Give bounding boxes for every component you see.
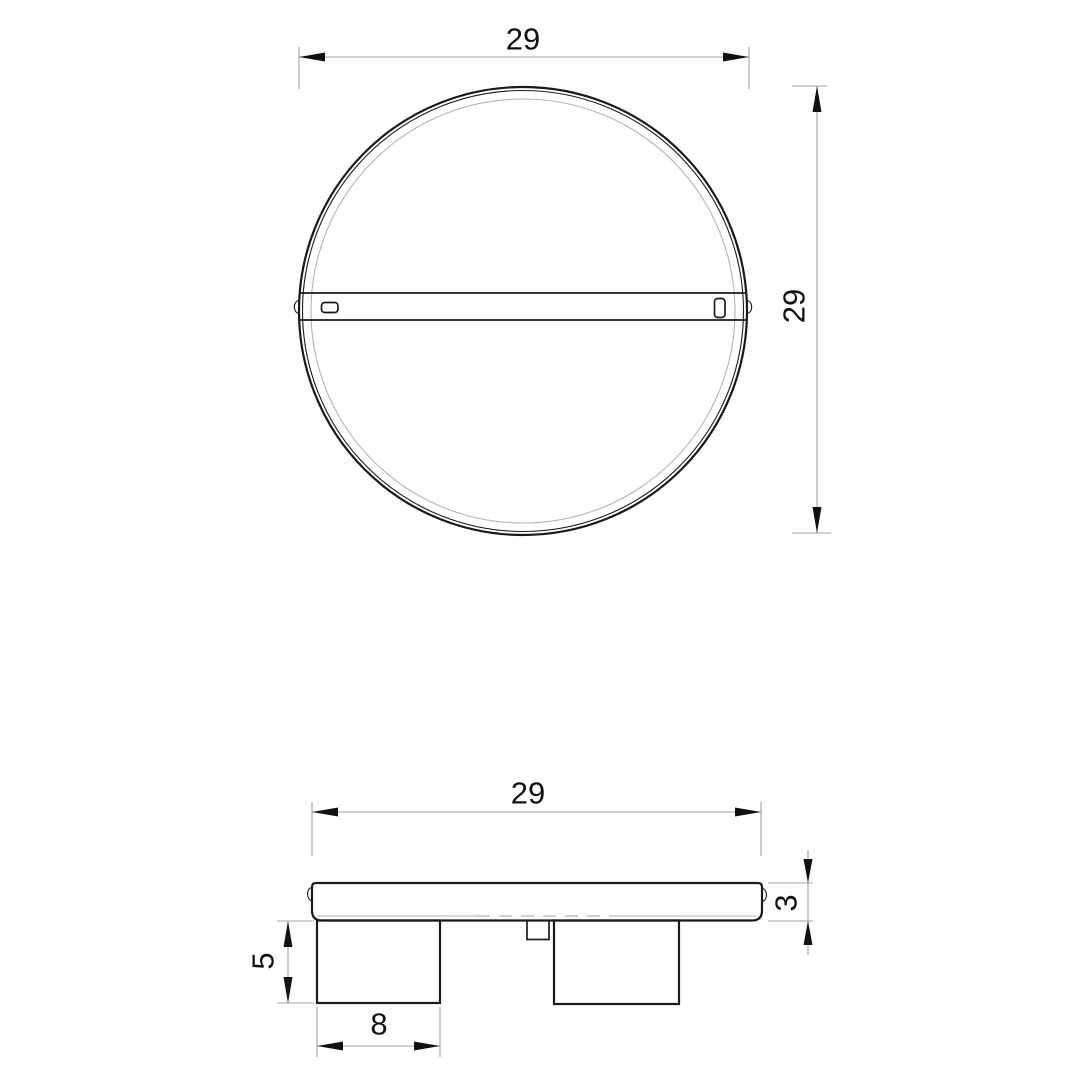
dim-top-height: 29 [777, 86, 832, 533]
arrowhead [317, 1042, 343, 1051]
dim-spot-height: 5 [246, 921, 315, 1003]
arrowhead [414, 1042, 440, 1051]
plate-inner-face-circle [311, 99, 735, 523]
mounting-slot-right [715, 299, 726, 318]
arrowhead [813, 507, 822, 533]
dim-side-width-label: 29 [511, 776, 545, 811]
plate-rim-circle [303, 91, 744, 532]
plate-outer-circle [299, 87, 747, 535]
dim-top-height-label: 29 [777, 289, 812, 323]
dim-top-width: 29 [299, 22, 749, 90]
arrowhead [804, 921, 813, 945]
spotlight-left [317, 921, 440, 1004]
dim-top-width-label: 29 [506, 22, 540, 57]
mounting-slot-left [322, 303, 339, 313]
technical-drawing: 29 29 29 3 [0, 0, 1080, 1080]
arrowhead [312, 808, 338, 817]
arrowhead [284, 977, 293, 1003]
canopy-outline [312, 883, 762, 921]
arrowhead [284, 921, 293, 947]
dim-side-thickness-label: 3 [769, 894, 804, 911]
junction-box [527, 921, 549, 940]
dim-side-thickness: 3 [768, 850, 813, 955]
mounting-bar [300, 293, 746, 320]
arrowhead [723, 53, 749, 62]
arrowhead [299, 53, 325, 62]
arrowhead [813, 86, 822, 112]
arrowhead [735, 808, 761, 817]
arrowhead [804, 859, 813, 883]
dim-spot-width-label: 8 [370, 1007, 387, 1042]
dim-spot-width: 8 [317, 1007, 440, 1058]
spotlight-right [554, 921, 679, 1005]
extension-line [277, 921, 314, 1003]
dim-spot-height-label: 5 [246, 952, 281, 969]
dim-side-width: 29 [312, 776, 761, 857]
drawing-canvas: 29 29 29 3 [0, 0, 1080, 1080]
side-view [308, 883, 767, 1004]
top-view [294, 87, 751, 535]
